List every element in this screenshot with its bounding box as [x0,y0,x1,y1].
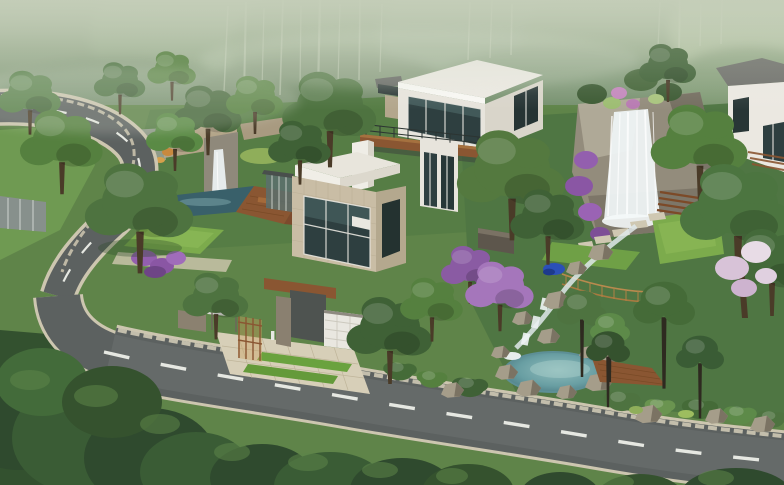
stone-pillar [276,296,291,347]
figure [271,331,274,340]
rendering-canvas [0,0,784,485]
side-window-lower [382,199,400,258]
trellis-gate [238,316,262,362]
glass-pavilion [262,170,294,212]
villa-landscape-rendering [0,0,784,485]
middle-tower [420,138,458,212]
lower-block [292,152,406,272]
recessed-wall [290,290,326,343]
glass-greenhouse [0,196,46,232]
